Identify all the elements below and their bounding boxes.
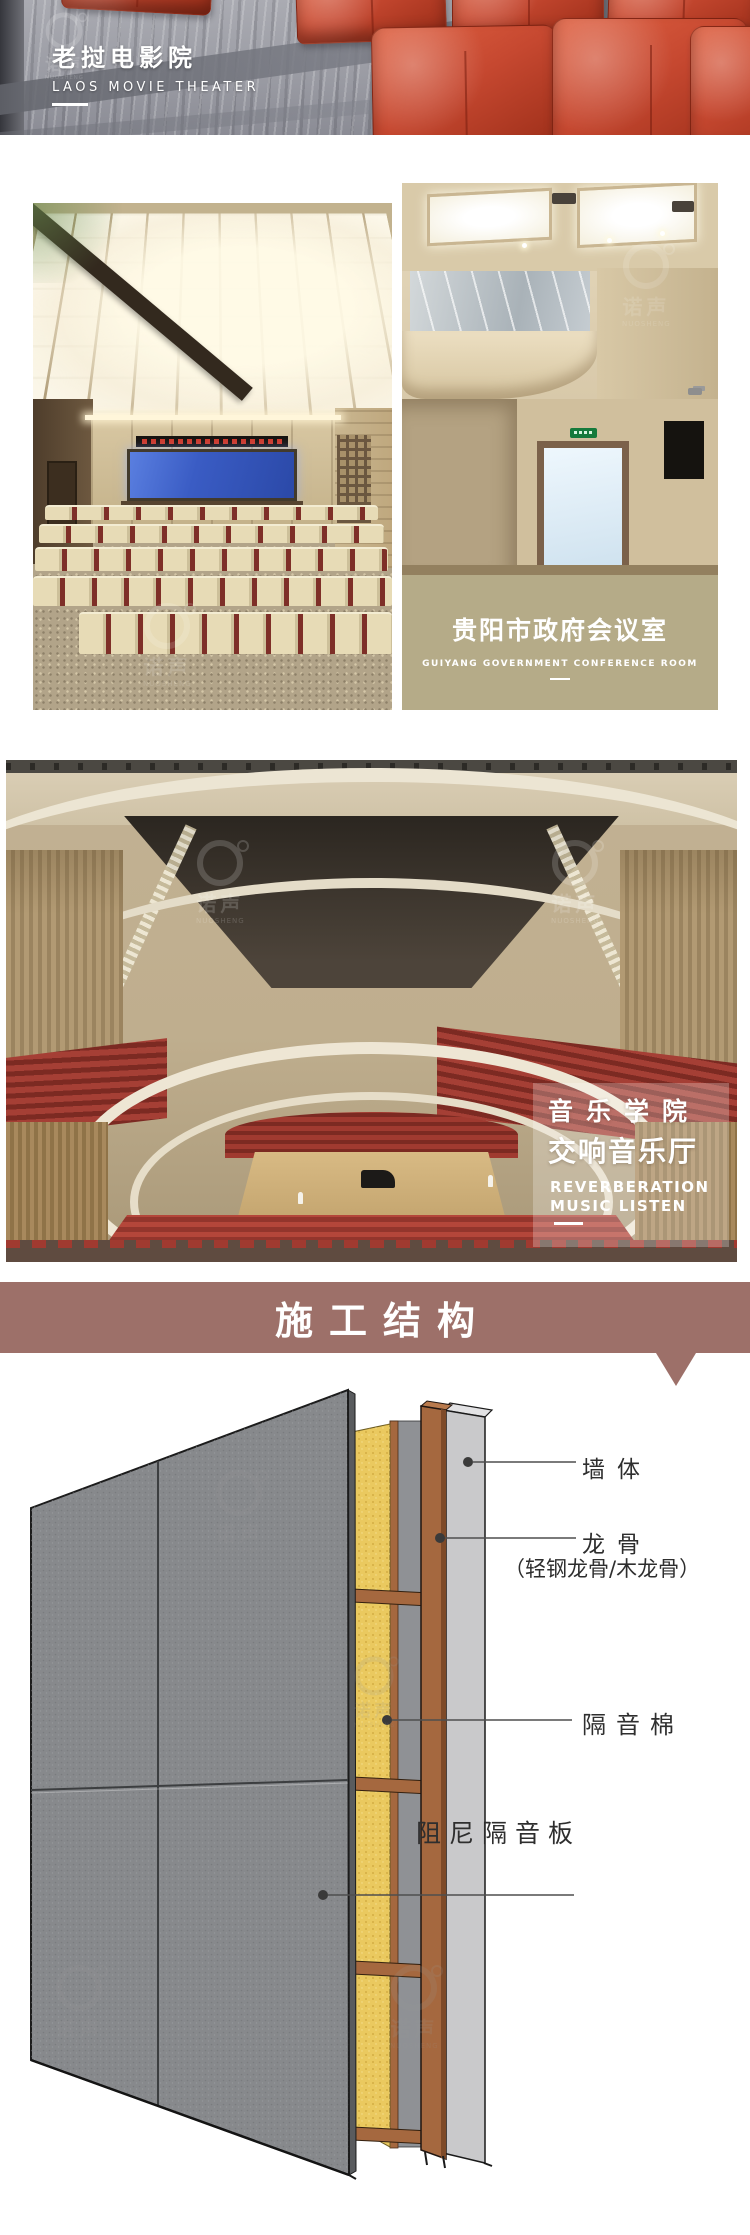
hero-text-block: 老挝电影院 LAOS MOVIE THEATER — [52, 38, 259, 106]
caption-subtitle: GUIYANG GOVERNMENT CONFERENCE ROOM — [422, 659, 698, 669]
sofa-shape — [371, 24, 559, 135]
caption-title: 贵阳市政府会议室 — [452, 611, 668, 647]
downlight — [660, 231, 665, 236]
photo-conference-hall: 诺声 NUOSHENG — [33, 203, 392, 710]
seat-row — [35, 547, 388, 571]
choir-seats — [225, 1112, 517, 1158]
sofa-shape — [61, 0, 213, 16]
concert-underline — [554, 1222, 583, 1225]
concert-title-en1: REVERBERATION — [550, 1178, 710, 1196]
conference-caption-card: 贵阳市政府会议室 GUIYANG GOVERNMENT CONFERENCE R… — [402, 575, 718, 710]
sofa-shape — [690, 26, 750, 135]
label-keel-sub: （轻钢龙骨/木龙骨） — [504, 1553, 700, 1583]
hero-banner: 诺声 NUOSHENG 老挝电影院 LAOS MOVIE THEATER — [0, 0, 750, 135]
caption-underline — [550, 678, 570, 680]
construction-diagram — [0, 1353, 750, 2235]
door-shape — [47, 461, 77, 533]
performer-figure — [488, 1175, 493, 1187]
keel-plank-edge — [441, 1409, 446, 2159]
seat-row — [39, 524, 384, 543]
section-title: 施工结构 — [259, 1290, 491, 1345]
concert-title-cn2: 交响音乐厅 — [548, 1130, 698, 1170]
security-camera — [688, 388, 702, 395]
luminous-panel — [427, 188, 552, 247]
downlight — [522, 243, 527, 248]
callout-dot-insulation — [382, 1715, 392, 1725]
concert-title-cn1: 音乐学院 — [548, 1092, 700, 1128]
label-insulation: 隔音棉 — [582, 1705, 684, 1740]
product-detail-page: 诺声 NUOSHENG 老挝电影院 LAOS MOVIE THEATER 诺声 — [0, 0, 750, 2235]
label-wall: 墙体 — [582, 1450, 652, 1484]
skirting — [402, 565, 718, 575]
banner-left-wall — [0, 0, 24, 135]
air-vent — [552, 193, 576, 204]
plant-blur — [33, 203, 133, 283]
callout-dot-board — [318, 1890, 328, 1900]
seat-row — [79, 612, 392, 654]
grand-piano — [361, 1170, 395, 1188]
callout-dot-wall — [463, 1457, 473, 1467]
photo-conference-room: 诺声 NUOSHENG — [402, 183, 718, 575]
seat-row — [33, 576, 392, 606]
damping-panel-speckle — [31, 1390, 349, 2175]
curved-parapet — [402, 331, 597, 399]
performer-figure — [298, 1192, 303, 1204]
wall-display — [664, 421, 704, 479]
slat-wall-left — [6, 850, 123, 1065]
callout-dot-keel — [435, 1533, 445, 1543]
seat-row — [45, 505, 378, 520]
corner-tick — [349, 2175, 356, 2179]
left-recess — [402, 399, 520, 575]
photo-concert-hall: 诺声 NUOSHENG 诺声 NUOSHENG 音乐学院 交响音乐厅 REVER… — [6, 760, 737, 1262]
air-vent — [672, 201, 694, 212]
door-opening — [537, 441, 629, 575]
exit-sign — [570, 428, 597, 438]
luminous-panel — [577, 183, 697, 248]
wall-body-shape — [443, 1410, 485, 2163]
section-header: 施工结构 — [0, 1282, 750, 1353]
slat-wall-right — [620, 850, 737, 1065]
hero-underline — [52, 103, 88, 106]
corner-tick — [425, 2152, 427, 2165]
corner-tick — [484, 2163, 492, 2166]
label-damping-board: 阻尼隔音板 — [416, 1814, 581, 1850]
lower-wood-wall-left — [6, 1122, 108, 1247]
hero-title: 老挝电影院 — [52, 38, 259, 73]
downlight — [607, 238, 612, 243]
blue-screen — [127, 449, 297, 501]
hero-subtitle: LAOS MOVIE THEATER — [52, 80, 259, 95]
concert-title-en2: MUSIC LISTEN — [550, 1197, 687, 1215]
led-message-strip — [136, 436, 288, 447]
cove-light — [85, 415, 341, 420]
